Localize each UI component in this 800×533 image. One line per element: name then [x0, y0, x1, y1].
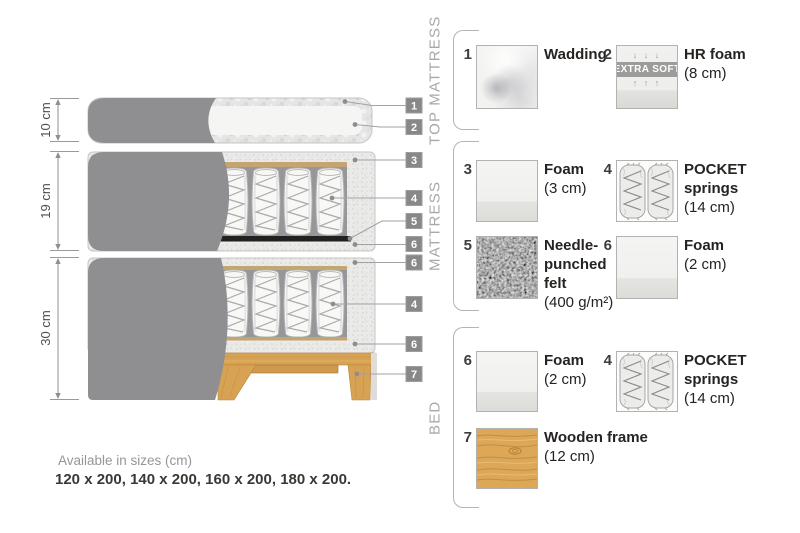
section-label-bed: BED: [424, 327, 446, 508]
legend-item-label: HR foam (8 cm): [684, 45, 768, 83]
top-mattress-cross-section: [88, 98, 372, 143]
legend-item-number: 6: [592, 237, 612, 254]
arrows-down-icon: ↓ ↓ ↓: [633, 51, 662, 60]
legend-item-label: POCKET springs (14 cm): [684, 351, 768, 408]
wood-texture: [477, 429, 537, 488]
legend-item-title: POCKET springs: [684, 352, 747, 388]
legend-item-size: (12 cm): [544, 447, 704, 466]
legend-item-title: HR foam: [684, 46, 746, 63]
legend-item-size: (400 g/m²): [544, 293, 620, 312]
available-sizes-heading: Available in sizes (cm): [58, 453, 192, 468]
fabric-cover: [88, 98, 216, 143]
fabric-cover: [88, 258, 228, 400]
legend-item-title: Wooden frame: [544, 429, 648, 446]
dimension-19cm: 19 cm: [38, 152, 79, 251]
legend-item-number: 4: [592, 161, 612, 178]
legend-item-size: (14 cm): [684, 198, 768, 217]
mattress-structure-infographic: 10 cm 19 cm 30 cm: [0, 0, 800, 533]
callout-tag: 7: [411, 369, 417, 381]
legend-item-number: 1: [452, 46, 472, 63]
wadding-swatch: [476, 45, 538, 109]
section-label-top-mattress: TOP MATTRESS: [424, 28, 446, 132]
legend-item-title: Foam: [544, 352, 584, 369]
foam-swatch: [616, 236, 678, 299]
legend-item-size: (2 cm): [684, 255, 768, 274]
wooden-frame: [216, 353, 377, 400]
bed-cross-section: [88, 258, 377, 400]
callout-tag: 6: [411, 258, 417, 270]
callout-tag: 4: [411, 193, 418, 205]
pocket-springs-illustration: [617, 352, 677, 411]
callout-tag: 4: [411, 299, 418, 311]
legend-item-size: (14 cm): [684, 389, 768, 408]
pocket-springs-swatch: [616, 160, 678, 222]
section-label-mattress: MATTRESS: [424, 141, 446, 311]
dimension-10cm: 10 cm: [38, 99, 79, 142]
fabric-cover: [88, 152, 229, 251]
callout-tag: 6: [411, 239, 417, 251]
callout-tag: 6: [411, 339, 417, 351]
callout-tag: 2: [411, 122, 417, 134]
legend-item-title: Foam: [544, 161, 584, 178]
wood-swatch: [476, 428, 538, 489]
extra-soft-badge: EXTRA SOFT: [616, 62, 678, 77]
callout-tag: 5: [411, 216, 417, 228]
legend-item-number: 6: [452, 352, 472, 369]
mattress-cross-section: [88, 152, 375, 251]
legend-item-title: POCKET springs: [684, 161, 747, 197]
legend-item-number: 4: [592, 352, 612, 369]
felt-texture: [477, 237, 537, 298]
dimension-30cm: 30 cm: [38, 258, 79, 400]
legend-item-size: (8 cm): [684, 64, 768, 83]
felt-swatch: [476, 236, 538, 299]
legend-item-title: Foam: [684, 237, 724, 254]
available-sizes-values: 120 x 200, 140 x 200, 160 x 200, 180 x 2…: [55, 471, 351, 488]
pocket-springs-illustration: [617, 161, 677, 221]
callout-tag: 3: [411, 155, 417, 167]
dimension-label: 30 cm: [38, 310, 53, 345]
legend-item-number: 7: [452, 429, 472, 446]
arrows-up-icon: ↑ ↑ ↑: [633, 79, 662, 88]
foam-swatch: [476, 160, 538, 222]
felt-layer: [218, 236, 351, 242]
legend-item-number: 3: [452, 161, 472, 178]
pocket-springs-swatch: [616, 351, 678, 412]
legend-item-number: 2: [592, 46, 612, 63]
hr-foam-swatch: ↓ ↓ ↓ EXTRA SOFT ↑ ↑ ↑: [616, 45, 678, 109]
legend-item-label: Foam (2 cm): [684, 236, 768, 274]
foam-swatch: [476, 351, 538, 412]
legend-item-label: Wooden frame (12 cm): [544, 428, 704, 466]
legend-item-number: 5: [452, 237, 472, 254]
callout-tag: 1: [411, 101, 417, 113]
legend-item-label: POCKET springs (14 cm): [684, 160, 768, 217]
dimension-label: 10 cm: [38, 102, 53, 137]
dimension-label: 19 cm: [38, 183, 53, 218]
